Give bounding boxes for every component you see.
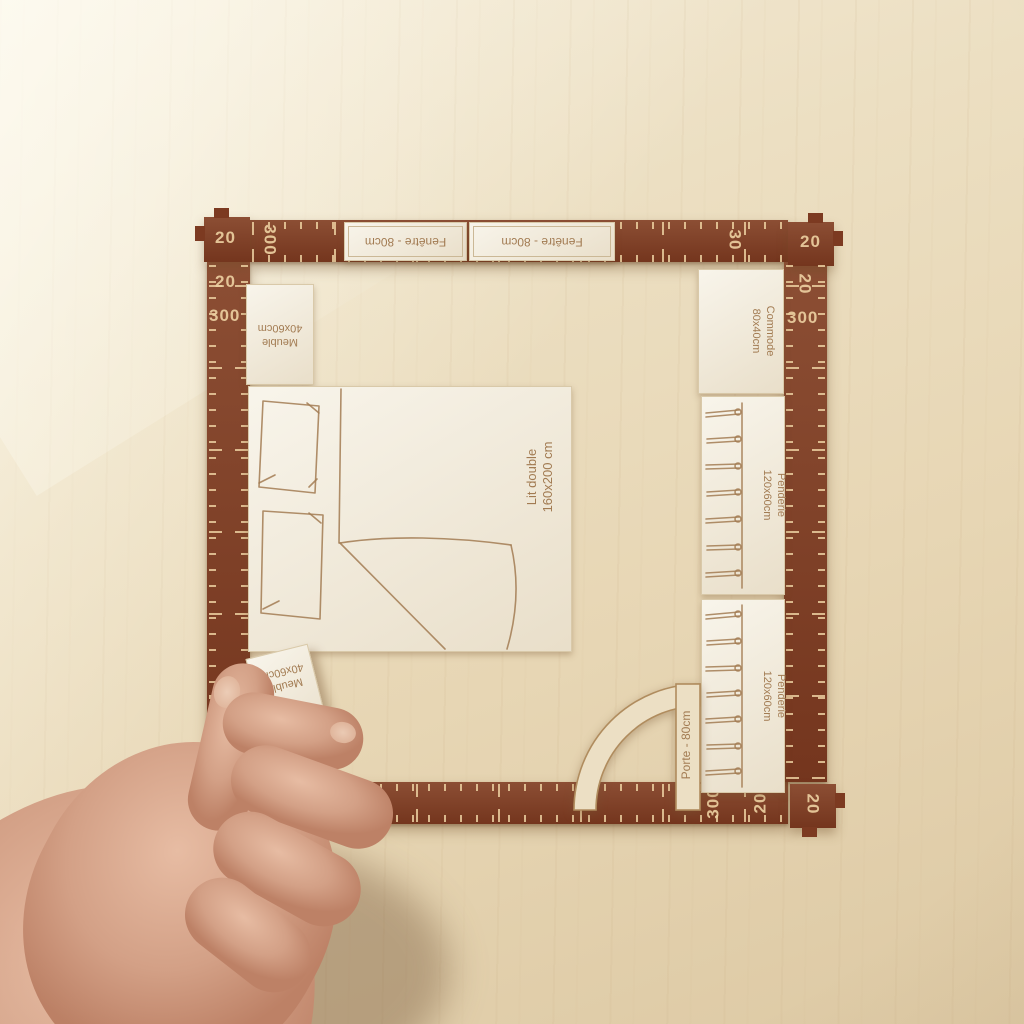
- ruler-label-right-edge: 300: [787, 308, 818, 328]
- cabinet-name: Meuble: [262, 335, 298, 349]
- commode-size: 80x40cm: [748, 309, 762, 354]
- window-label: Fenêtre - 80cm: [470, 223, 614, 260]
- wardrobe-size: 120x60cm: [759, 671, 773, 722]
- wardrobe-label: Penderie 120x60cm: [755, 450, 791, 540]
- piece-wardrobe-top: Penderie 120x60cm: [701, 396, 785, 595]
- ruler-label-top-30: 30: [724, 230, 744, 251]
- piece-bed: Lit double 160x200 cm: [248, 386, 572, 652]
- ruler-label-corner-tl: 20: [215, 228, 236, 248]
- piece-wardrobe-bottom: Penderie 120x60cm: [701, 599, 785, 793]
- wardrobe-name: Penderie: [773, 473, 787, 517]
- ruler-label-left-edge: 300: [209, 306, 240, 326]
- bed-name: Lit double: [524, 449, 540, 505]
- bed-label: Lit double 160x200 cm: [520, 422, 560, 532]
- wardrobe-name: Penderie: [773, 674, 787, 718]
- puzzle-tab-icon: [802, 827, 817, 837]
- cabinet-size: 40x60cm: [258, 321, 303, 335]
- puzzle-tab-icon: [808, 213, 823, 223]
- ruler-label-top-edge: 300: [260, 224, 280, 255]
- ruler-label-corner-br: 20: [802, 794, 822, 815]
- piece-commode: Commode 80x40cm: [698, 269, 784, 394]
- ruler-label-right-20: 20: [794, 274, 814, 295]
- commode-label: Commode 80x40cm: [743, 286, 781, 376]
- puzzle-tab-icon: [835, 793, 845, 808]
- ruler-label-left-20: 20: [215, 272, 236, 292]
- door-label: Porte - 80cm: [679, 699, 697, 791]
- puzzle-tab-icon: [833, 231, 843, 246]
- photo-scene: 20 20 20 300 30 20 300 20 20 300 300 20: [0, 0, 1024, 1024]
- wardrobe-label: Penderie 120x60cm: [755, 651, 791, 741]
- ruler-ticks: [812, 265, 825, 779]
- corner-piece-top-left: 20: [204, 217, 250, 262]
- window-label: Fenêtre - 80cm: [345, 223, 466, 260]
- cabinet-label: Meuble 40x60cm: [247, 285, 313, 384]
- corner-piece-top-right: 20: [788, 222, 834, 266]
- ruler-label-bottom-20: 20: [750, 793, 770, 814]
- ruler-label-corner-tr: 20: [800, 232, 821, 252]
- piece-window-right: Fenêtre - 80cm: [469, 222, 615, 261]
- corner-piece-bottom-right: 20: [790, 784, 836, 828]
- puzzle-tab-icon: [195, 226, 205, 241]
- piece-cabinet-shelf: Meuble 40x60cm: [246, 284, 314, 385]
- piece-door: Porte - 80cm: [566, 676, 706, 816]
- piece-window-left: Fenêtre - 80cm: [344, 222, 467, 261]
- bed-size: 160x200 cm: [540, 442, 556, 513]
- puzzle-tab-icon: [214, 208, 229, 218]
- wardrobe-size: 120x60cm: [759, 470, 773, 521]
- commode-name: Commode: [762, 306, 776, 357]
